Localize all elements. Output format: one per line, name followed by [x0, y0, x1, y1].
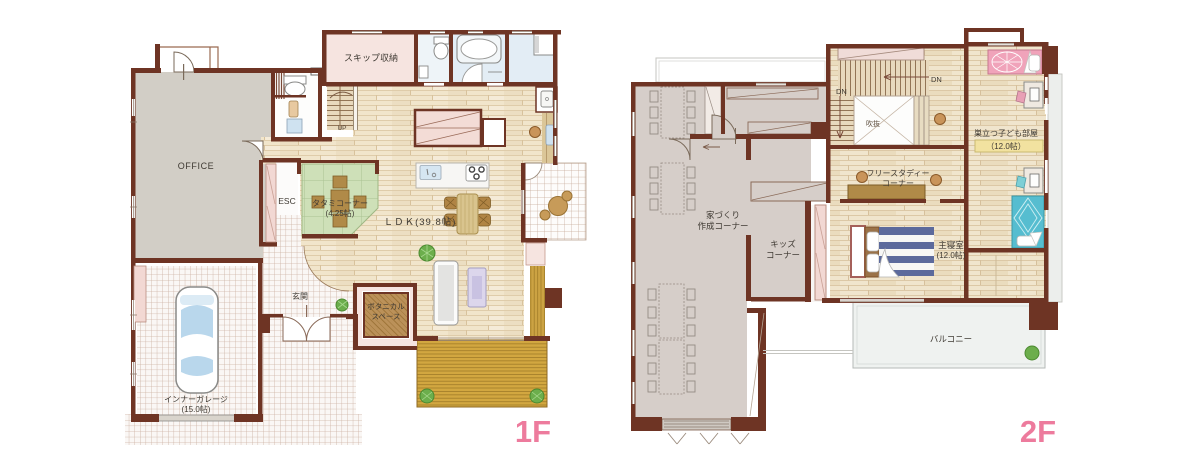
svg-text:フリースタディー: フリースタディー [866, 168, 929, 178]
svg-text:タタミコーナー: タタミコーナー [312, 199, 368, 208]
svg-text:（12.0帖）: （12.0帖） [986, 141, 1026, 151]
svg-text:コーナー: コーナー [882, 179, 914, 188]
svg-text:巣立つ子ども部屋: 巣立つ子ども部屋 [974, 128, 1038, 138]
svg-text:ボタニカル: ボタニカル [367, 302, 405, 311]
svg-text:キッズ: キッズ [770, 239, 796, 249]
svg-text:インナーガレージ: インナーガレージ [164, 394, 228, 404]
svg-text:スキップ収納: スキップ収納 [344, 52, 398, 63]
svg-text:玄関: 玄関 [292, 291, 308, 301]
svg-text:ＬＤＫ(39.8帖): ＬＤＫ(39.8帖) [384, 216, 457, 228]
svg-text:家づくり: 家づくり [706, 210, 740, 220]
svg-text:2F: 2F [1020, 414, 1056, 449]
svg-text:UP: UP [337, 125, 346, 132]
svg-text:吹抜: 吹抜 [866, 119, 880, 128]
svg-text:バルコニー: バルコニー [930, 334, 972, 344]
svg-text:1F: 1F [515, 414, 551, 449]
svg-text:(15.0帖): (15.0帖) [182, 404, 211, 414]
svg-text:(4.25帖): (4.25帖) [326, 208, 355, 218]
svg-text:OFFICE: OFFICE [178, 161, 215, 171]
svg-text:主寝室: 主寝室 [938, 240, 964, 250]
svg-text:コーナー: コーナー [766, 250, 800, 260]
svg-text:DN: DN [836, 87, 847, 96]
svg-text:ESC: ESC [278, 196, 295, 206]
svg-text:(12.0帖): (12.0帖) [937, 250, 966, 260]
svg-text:作成コーナー: 作成コーナー [697, 221, 748, 231]
svg-text:DN: DN [931, 75, 942, 84]
svg-text:スペース: スペース [371, 312, 400, 321]
